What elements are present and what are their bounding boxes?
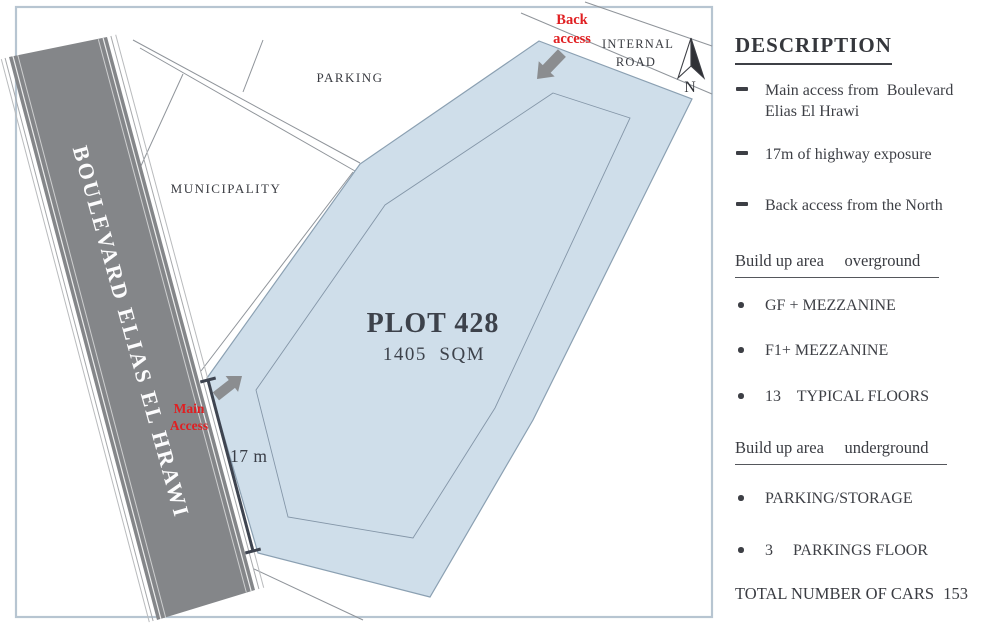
total-cars-label: TOTAL NUMBER OF CARS — [735, 584, 934, 604]
dot-bullet-icon — [738, 547, 744, 553]
dot-bullet-icon — [738, 393, 744, 399]
list-item: 3 PARKINGS FLOOR — [733, 540, 979, 561]
section-heading-overground: Build up area overground — [735, 251, 939, 278]
list-item-text: 3 PARKINGS FLOOR — [765, 540, 971, 561]
main-access-label: Main — [174, 401, 205, 416]
plot-number-label: PLOT 428 — [367, 308, 500, 339]
map-area: BOULEVARD ELIAS EL HRAWI 17 m N PARKING … — [0, 0, 720, 640]
dot-bullet-icon — [738, 495, 744, 501]
internal-road-label: ROAD — [616, 55, 656, 69]
main-access-label: Access — [170, 418, 208, 433]
north-label: N — [684, 79, 696, 96]
list-item-text: F1+ MEZZANINE — [765, 340, 971, 361]
list-item: Back access from the North — [733, 195, 979, 216]
dot-bullet-icon — [738, 347, 744, 353]
total-cars-row: TOTAL NUMBER OF CARS 153 — [735, 584, 968, 604]
description-panel: DESCRIPTION Main access from Boulevard E… — [733, 0, 981, 640]
internal-road-label: INTERNAL — [602, 37, 674, 51]
dash-bullet-icon — [736, 151, 748, 155]
municipality-label: MUNICIPALITY — [171, 181, 282, 196]
plot-area-label: 1405 SQM — [383, 344, 485, 365]
dot-bullet-icon — [738, 302, 744, 308]
list-item: PARKING/STORAGE — [733, 488, 979, 509]
list-item: Main access from Boulevard Elias El Hraw… — [733, 80, 979, 122]
list-item-text: GF + MEZZANINE — [765, 295, 971, 316]
parking-label: PARKING — [316, 70, 383, 85]
dash-bullet-icon — [736, 87, 748, 91]
list-item-text: 13 TYPICAL FLOORS — [765, 386, 971, 407]
total-cars-value: 153 — [943, 584, 968, 604]
back-access-label: access — [553, 31, 591, 47]
list-item: F1+ MEZZANINE — [733, 340, 979, 361]
back-access-label: Back — [556, 12, 588, 28]
dash-bullet-icon — [736, 202, 748, 206]
site-plan-map: BOULEVARD ELIAS EL HRAWI 17 m N PARKING … — [0, 0, 720, 640]
list-item-text: Back access from the North — [765, 195, 971, 216]
list-item-text: PARKING/STORAGE — [765, 488, 971, 509]
panel-title: DESCRIPTION — [735, 33, 892, 65]
list-item: 17m of highway exposure — [733, 144, 979, 165]
dimension-label: 17 m — [230, 446, 268, 466]
list-item: 13 TYPICAL FLOORS — [733, 386, 979, 407]
list-item-text: Main access from Boulevard Elias El Hraw… — [765, 80, 971, 122]
site-plan-page: BOULEVARD ELIAS EL HRAWI 17 m N PARKING … — [0, 0, 985, 640]
list-item: GF + MEZZANINE — [733, 295, 979, 316]
list-item-text: 17m of highway exposure — [765, 144, 971, 165]
section-heading-underground: Build up area underground — [735, 438, 947, 465]
